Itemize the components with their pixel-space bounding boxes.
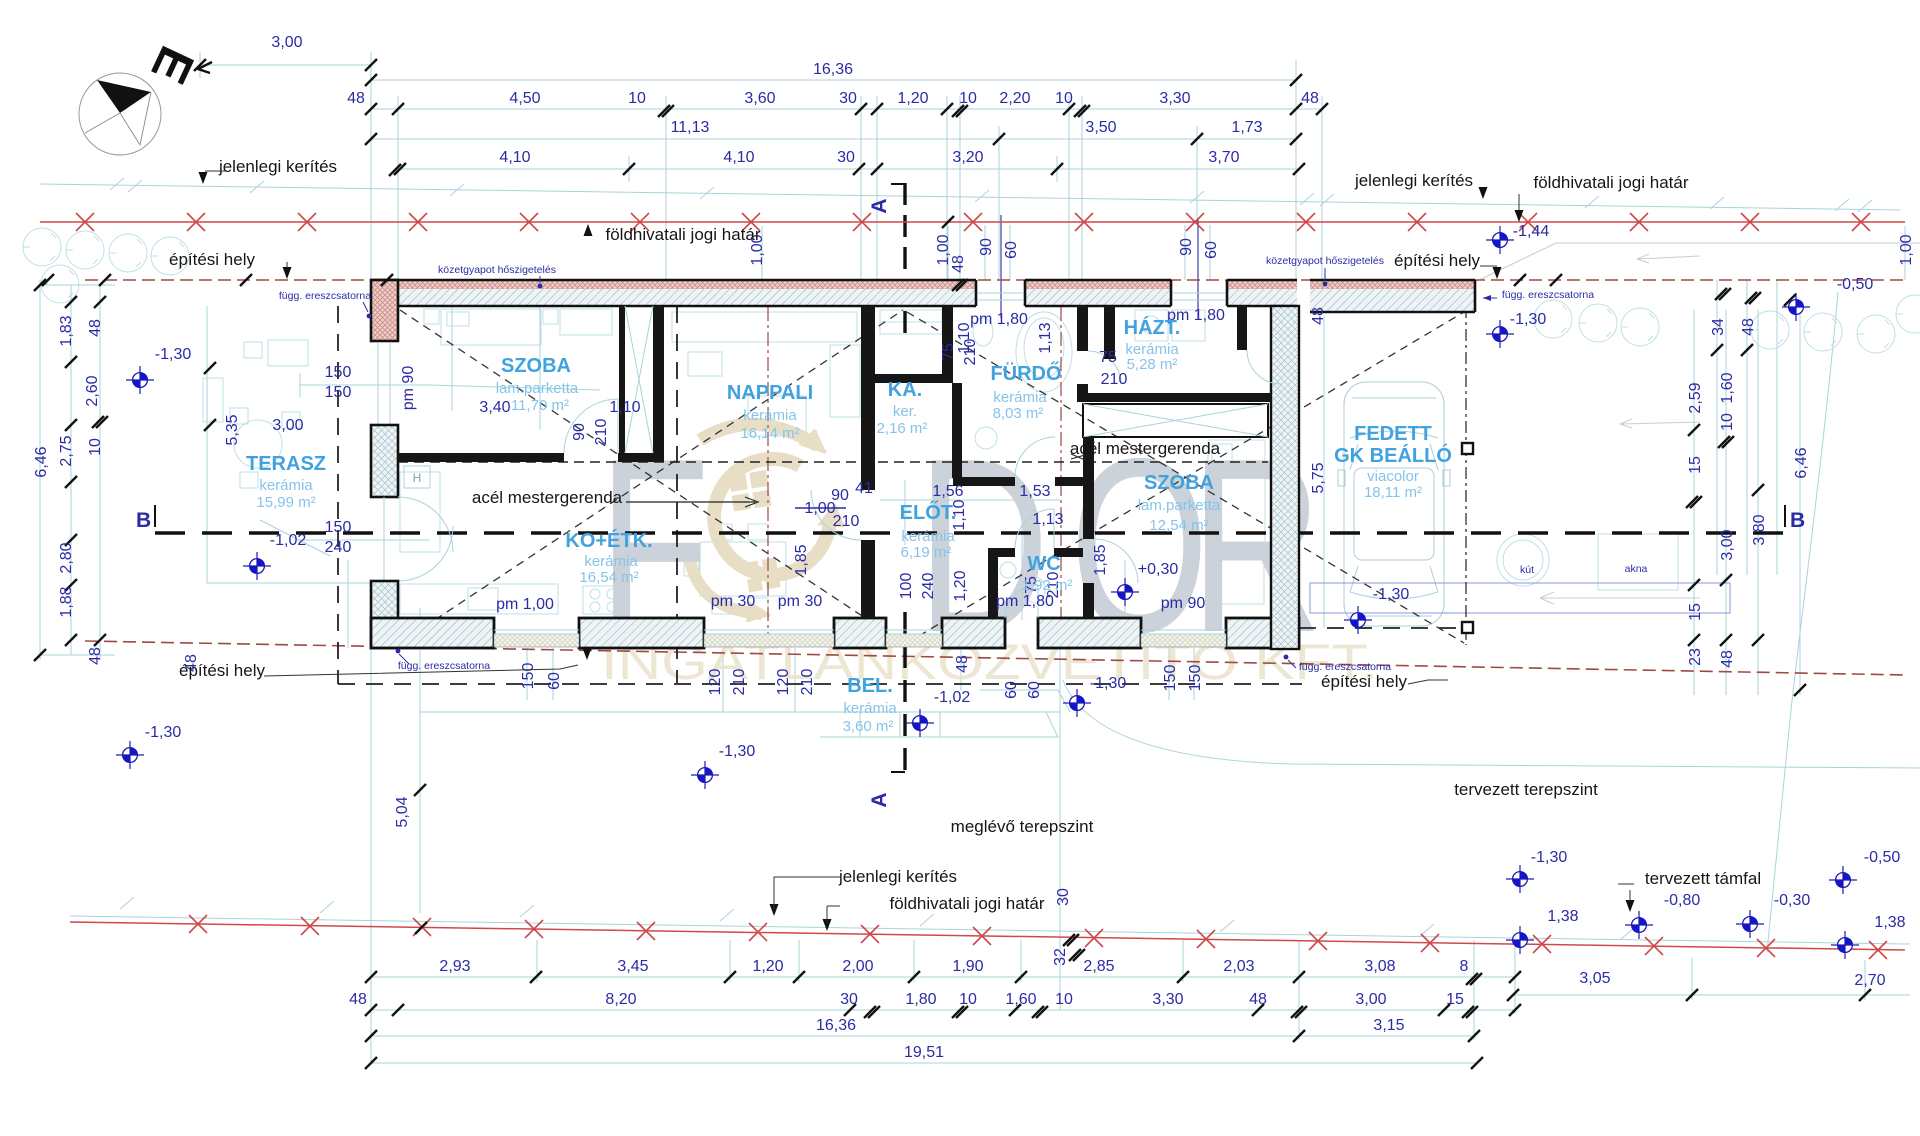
svg-text:3,60 m²: 3,60 m² bbox=[843, 718, 894, 735]
svg-text:210: 210 bbox=[799, 669, 816, 696]
svg-text:+0,30: +0,30 bbox=[1138, 561, 1179, 578]
svg-text:ker.: ker. bbox=[893, 403, 917, 420]
svg-text:földhivatali jogi határ: földhivatali jogi határ bbox=[606, 225, 761, 244]
svg-text:2,93: 2,93 bbox=[439, 958, 470, 975]
svg-text:60: 60 bbox=[546, 672, 563, 690]
svg-text:építési hely: építési hely bbox=[1321, 672, 1407, 691]
svg-text:19,51: 19,51 bbox=[904, 1044, 944, 1061]
svg-text:8: 8 bbox=[1460, 958, 1469, 975]
svg-text:11,70 m²: 11,70 m² bbox=[511, 397, 569, 414]
svg-text:1,13: 1,13 bbox=[1037, 322, 1054, 353]
svg-text:3,05: 3,05 bbox=[1579, 970, 1610, 987]
svg-text:-1,30: -1,30 bbox=[1373, 586, 1410, 603]
svg-text:-1,30: -1,30 bbox=[1090, 675, 1127, 692]
svg-text:3,08: 3,08 bbox=[1364, 958, 1395, 975]
svg-text:3,40: 3,40 bbox=[479, 399, 510, 416]
svg-text:építési hely: építési hely bbox=[169, 250, 255, 269]
svg-text:1,73: 1,73 bbox=[1231, 119, 1262, 136]
svg-text:60: 60 bbox=[1026, 681, 1043, 699]
svg-text:10: 10 bbox=[87, 438, 104, 456]
svg-text:5,75: 5,75 bbox=[1310, 462, 1327, 493]
svg-text:3,20: 3,20 bbox=[952, 149, 983, 166]
svg-text:földhivatali jogi határ: földhivatali jogi határ bbox=[1534, 173, 1689, 192]
svg-text:10: 10 bbox=[959, 991, 977, 1008]
svg-text:lam.parketta: lam.parketta bbox=[1138, 497, 1221, 514]
svg-text:30: 30 bbox=[839, 90, 857, 107]
svg-text:240: 240 bbox=[325, 539, 352, 556]
svg-text:1,85: 1,85 bbox=[793, 544, 810, 575]
svg-text:jelenlegi kerítés: jelenlegi kerítés bbox=[218, 157, 337, 176]
svg-text:kerámia: kerámia bbox=[993, 389, 1047, 406]
svg-text:WC: WC bbox=[1027, 553, 1060, 575]
svg-text:4,10: 4,10 bbox=[499, 149, 530, 166]
svg-text:2,20: 2,20 bbox=[999, 90, 1030, 107]
svg-text:1,20: 1,20 bbox=[752, 958, 783, 975]
svg-text:150: 150 bbox=[1162, 665, 1179, 692]
svg-text:11,13: 11,13 bbox=[671, 119, 710, 136]
svg-text:120: 120 bbox=[775, 669, 792, 696]
svg-text:1,20: 1,20 bbox=[897, 90, 928, 107]
svg-text:1,53: 1,53 bbox=[1019, 483, 1050, 500]
svg-text:-1,30: -1,30 bbox=[145, 724, 182, 741]
svg-text:48: 48 bbox=[1301, 90, 1319, 107]
svg-text:B: B bbox=[136, 509, 151, 532]
svg-text:közetgyapot hőszigetelés: közetgyapot hőszigetelés bbox=[1266, 255, 1384, 267]
svg-text:tervezett támfal: tervezett támfal bbox=[1645, 869, 1761, 888]
svg-text:10: 10 bbox=[1055, 90, 1073, 107]
svg-text:kerámia: kerámia bbox=[743, 407, 797, 424]
svg-text:földhivatali jogi határ: földhivatali jogi határ bbox=[890, 894, 1045, 913]
svg-text:240: 240 bbox=[920, 573, 937, 600]
svg-text:15: 15 bbox=[1687, 456, 1704, 474]
svg-text:tervezett terepszint: tervezett terepszint bbox=[1454, 780, 1598, 799]
svg-text:1,13: 1,13 bbox=[1032, 511, 1063, 528]
svg-text:1,20: 1,20 bbox=[952, 570, 969, 601]
svg-text:34: 34 bbox=[1710, 318, 1727, 336]
svg-text:8,03 m²: 8,03 m² bbox=[993, 405, 1044, 422]
svg-text:-0,50: -0,50 bbox=[1864, 849, 1901, 866]
svg-text:építési hely: építési hely bbox=[179, 661, 265, 680]
svg-text:5,35: 5,35 bbox=[224, 414, 241, 445]
svg-text:-1,02: -1,02 bbox=[270, 532, 307, 549]
svg-text:-1,44: -1,44 bbox=[1513, 223, 1550, 240]
svg-text:48: 48 bbox=[87, 647, 104, 665]
svg-text:2,85: 2,85 bbox=[1083, 958, 1114, 975]
svg-text:pm 30: pm 30 bbox=[711, 593, 756, 610]
svg-text:KA.: KA. bbox=[888, 379, 922, 401]
svg-text:48: 48 bbox=[349, 991, 367, 1008]
svg-text:4,10: 4,10 bbox=[723, 149, 754, 166]
svg-text:pm 1,00: pm 1,00 bbox=[496, 596, 554, 613]
svg-text:2,60: 2,60 bbox=[84, 375, 101, 406]
svg-text:60: 60 bbox=[1003, 241, 1020, 259]
svg-text:3,00: 3,00 bbox=[272, 417, 303, 434]
svg-text:B: B bbox=[1790, 509, 1805, 532]
svg-text:1,38: 1,38 bbox=[1874, 914, 1905, 931]
svg-text:H: H bbox=[413, 471, 422, 485]
svg-text:2,16 m²: 2,16 m² bbox=[877, 420, 928, 437]
svg-text:100: 100 bbox=[898, 573, 915, 600]
svg-text:5,28 m²: 5,28 m² bbox=[1127, 356, 1178, 373]
svg-text:1,88: 1,88 bbox=[58, 586, 75, 617]
svg-text:30: 30 bbox=[840, 991, 858, 1008]
svg-text:48: 48 bbox=[950, 255, 967, 273]
svg-text:150: 150 bbox=[325, 364, 352, 381]
svg-text:GK BEÁLLÓ: GK BEÁLLÓ bbox=[1334, 443, 1452, 467]
svg-text:10: 10 bbox=[959, 90, 977, 107]
svg-text:10: 10 bbox=[1055, 991, 1073, 1008]
svg-text:kerámia: kerámia bbox=[584, 553, 638, 570]
svg-text:-0,50: -0,50 bbox=[1837, 276, 1874, 293]
svg-text:6,46: 6,46 bbox=[1793, 447, 1810, 478]
svg-text:3,00: 3,00 bbox=[1719, 529, 1736, 560]
svg-text:1,85: 1,85 bbox=[1092, 544, 1109, 575]
svg-text:pm 90: pm 90 bbox=[400, 366, 417, 411]
svg-text:75: 75 bbox=[1099, 349, 1117, 366]
svg-text:FEDETT: FEDETT bbox=[1354, 423, 1432, 445]
svg-text:1,56: 1,56 bbox=[932, 483, 963, 500]
svg-text:150: 150 bbox=[1187, 665, 1204, 692]
svg-text:48: 48 bbox=[1719, 650, 1736, 668]
svg-text:23: 23 bbox=[1687, 648, 1704, 666]
svg-text:közetgyapot hőszigetelés: közetgyapot hőszigetelés bbox=[438, 264, 556, 276]
svg-text:10: 10 bbox=[628, 90, 646, 107]
svg-text:1,60: 1,60 bbox=[1005, 991, 1036, 1008]
svg-text:1,60: 1,60 bbox=[1719, 372, 1736, 403]
svg-text:-1,30: -1,30 bbox=[1510, 311, 1547, 328]
svg-text:16,14 m²: 16,14 m² bbox=[740, 425, 799, 442]
svg-text:függ. ereszcsatorna: függ. ereszcsatorna bbox=[1299, 661, 1391, 673]
svg-text:kút: kút bbox=[1520, 564, 1534, 576]
svg-text:12,54 m²: 12,54 m² bbox=[1149, 517, 1208, 534]
svg-text:75: 75 bbox=[940, 343, 957, 361]
svg-text:NAPPALI: NAPPALI bbox=[727, 382, 813, 404]
svg-text:120: 120 bbox=[707, 669, 724, 696]
svg-text:41: 41 bbox=[855, 480, 873, 497]
svg-text:-1,30: -1,30 bbox=[1531, 849, 1568, 866]
svg-text:8,20: 8,20 bbox=[605, 991, 636, 1008]
svg-text:210: 210 bbox=[731, 669, 748, 696]
svg-text:150: 150 bbox=[325, 384, 352, 401]
svg-text:1,92 m²: 1,92 m² bbox=[1022, 577, 1073, 594]
svg-text:kerámia: kerámia bbox=[901, 528, 955, 545]
svg-text:3,50: 3,50 bbox=[1085, 119, 1116, 136]
svg-text:KO+ÉTK.: KO+ÉTK. bbox=[565, 529, 652, 552]
svg-text:TERASZ: TERASZ bbox=[246, 453, 326, 475]
svg-text:2,80: 2,80 bbox=[58, 542, 75, 573]
svg-text:5,04: 5,04 bbox=[394, 796, 411, 827]
svg-text:pm 1,80: pm 1,80 bbox=[970, 311, 1028, 328]
svg-text:48: 48 bbox=[1740, 318, 1757, 336]
svg-text:kerámia: kerámia bbox=[843, 700, 897, 717]
svg-text:60: 60 bbox=[1203, 241, 1220, 259]
svg-text:90: 90 bbox=[1178, 238, 1195, 256]
svg-text:18,11 m²: 18,11 m² bbox=[1364, 484, 1422, 501]
svg-text:48: 48 bbox=[1310, 307, 1327, 325]
svg-text:10: 10 bbox=[1719, 413, 1736, 431]
svg-text:16,54 m²: 16,54 m² bbox=[579, 569, 638, 586]
svg-text:FÜRDŐ: FÜRDŐ bbox=[990, 362, 1061, 385]
svg-text:3,15: 3,15 bbox=[1373, 1017, 1404, 1034]
svg-text:HÁZT.: HÁZT. bbox=[1124, 316, 1181, 339]
svg-text:90: 90 bbox=[978, 238, 995, 256]
svg-text:1,10: 1,10 bbox=[609, 399, 640, 416]
svg-text:A: A bbox=[868, 198, 891, 213]
svg-text:48: 48 bbox=[87, 319, 104, 337]
svg-text:4,50: 4,50 bbox=[509, 90, 540, 107]
svg-text:jelenlegi kerítés: jelenlegi kerítés bbox=[1354, 171, 1473, 190]
svg-text:1,90: 1,90 bbox=[952, 958, 983, 975]
svg-text:60: 60 bbox=[1003, 681, 1020, 699]
svg-text:150: 150 bbox=[325, 519, 352, 536]
svg-text:15: 15 bbox=[1687, 603, 1704, 621]
svg-text:3,80: 3,80 bbox=[1751, 514, 1768, 545]
svg-text:48: 48 bbox=[1249, 991, 1267, 1008]
svg-text:SZOBA: SZOBA bbox=[1144, 472, 1214, 494]
svg-text:1,00: 1,00 bbox=[1898, 234, 1915, 265]
svg-text:1,83: 1,83 bbox=[58, 315, 75, 346]
svg-text:acél mestergerenda: acél mestergerenda bbox=[1070, 439, 1221, 458]
svg-text:ELŐT.: ELŐT. bbox=[900, 501, 957, 524]
svg-text:építési hely: építési hely bbox=[1394, 251, 1480, 270]
svg-text:függ. ereszcsatorna: függ. ereszcsatorna bbox=[398, 660, 490, 672]
svg-text:3,30: 3,30 bbox=[1159, 90, 1190, 107]
svg-text:210: 210 bbox=[962, 339, 979, 366]
svg-text:3,45: 3,45 bbox=[617, 958, 648, 975]
svg-text:függ. ereszcsatorna: függ. ereszcsatorna bbox=[1502, 289, 1594, 301]
svg-text:15: 15 bbox=[1446, 991, 1464, 1008]
svg-text:-1,30: -1,30 bbox=[719, 743, 756, 760]
svg-text:150: 150 bbox=[520, 663, 537, 690]
svg-text:viacolor: viacolor bbox=[1367, 468, 1419, 485]
svg-text:48: 48 bbox=[954, 655, 971, 673]
svg-text:30: 30 bbox=[837, 149, 855, 166]
svg-text:2,03: 2,03 bbox=[1223, 958, 1254, 975]
svg-text:acél mestergerenda: acél mestergerenda bbox=[472, 488, 623, 507]
svg-text:-1,30: -1,30 bbox=[155, 346, 192, 363]
svg-text:2,70: 2,70 bbox=[1854, 972, 1885, 989]
svg-text:16,36: 16,36 bbox=[813, 61, 853, 78]
svg-text:30: 30 bbox=[1055, 888, 1072, 906]
svg-text:-0,30: -0,30 bbox=[1774, 892, 1811, 909]
svg-text:jelenlegi kerítés: jelenlegi kerítés bbox=[838, 867, 957, 886]
svg-text:3,30: 3,30 bbox=[1152, 991, 1183, 1008]
svg-text:3,60: 3,60 bbox=[744, 90, 775, 107]
svg-text:SZOBA: SZOBA bbox=[501, 355, 571, 377]
svg-text:3,00: 3,00 bbox=[271, 34, 302, 51]
svg-text:3,00: 3,00 bbox=[1355, 991, 1386, 1008]
svg-text:210: 210 bbox=[1101, 371, 1128, 388]
svg-text:3,70: 3,70 bbox=[1208, 149, 1239, 166]
svg-text:meglévő terepszint: meglévő terepszint bbox=[951, 817, 1094, 836]
svg-text:16,36: 16,36 bbox=[816, 1017, 856, 1034]
svg-text:2,59: 2,59 bbox=[1687, 382, 1704, 413]
svg-text:-1,02: -1,02 bbox=[934, 689, 971, 706]
svg-text:210: 210 bbox=[833, 513, 860, 530]
svg-text:32: 32 bbox=[1052, 948, 1069, 966]
svg-text:6,46: 6,46 bbox=[33, 446, 50, 477]
svg-text:kerámia: kerámia bbox=[259, 477, 313, 494]
svg-text:210: 210 bbox=[593, 419, 610, 446]
svg-text:2,00: 2,00 bbox=[842, 958, 873, 975]
svg-text:15,99 m²: 15,99 m² bbox=[256, 494, 315, 511]
svg-text:6,19 m²: 6,19 m² bbox=[901, 544, 952, 561]
svg-text:függ. ereszcsatorna: függ. ereszcsatorna bbox=[279, 290, 371, 302]
svg-text:-0,80: -0,80 bbox=[1664, 892, 1701, 909]
svg-text:A: A bbox=[868, 792, 891, 807]
svg-text:48: 48 bbox=[347, 90, 365, 107]
svg-text:pm 90: pm 90 bbox=[1161, 595, 1206, 612]
svg-text:1,80: 1,80 bbox=[905, 991, 936, 1008]
svg-text:akna: akna bbox=[1625, 563, 1648, 575]
svg-text:2,75: 2,75 bbox=[58, 435, 75, 466]
svg-text:lam.parketta: lam.parketta bbox=[496, 380, 579, 397]
svg-text:1,38: 1,38 bbox=[1547, 908, 1578, 925]
svg-text:pm 30: pm 30 bbox=[778, 593, 823, 610]
svg-text:BEL.: BEL. bbox=[847, 675, 893, 697]
svg-text:90: 90 bbox=[571, 423, 588, 441]
